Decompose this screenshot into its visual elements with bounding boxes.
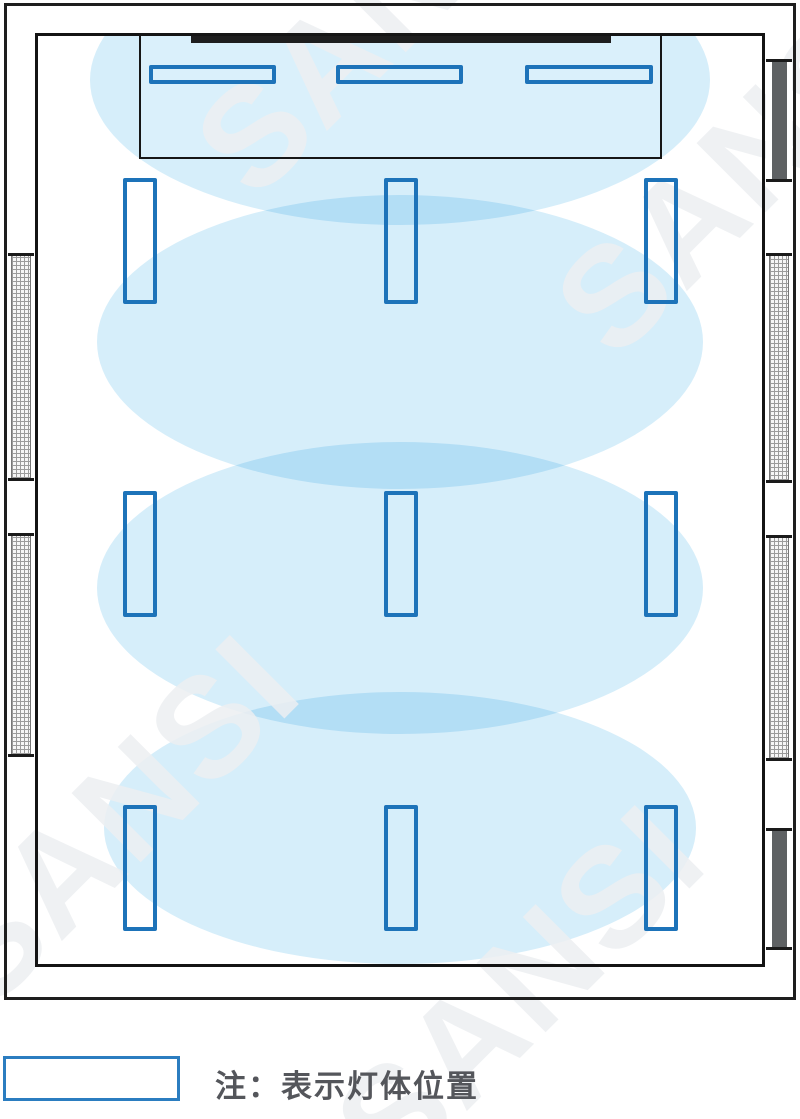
lamp-legend-swatch xyxy=(3,1056,180,1101)
legend-note-text: 注：表示灯体位置 xyxy=(215,1061,479,1106)
lighting-layout-diagram: SANSISANSISANSISANSI 注：表示灯体位置 xyxy=(0,0,800,1119)
legend: 注：表示灯体位置 xyxy=(0,0,800,1119)
